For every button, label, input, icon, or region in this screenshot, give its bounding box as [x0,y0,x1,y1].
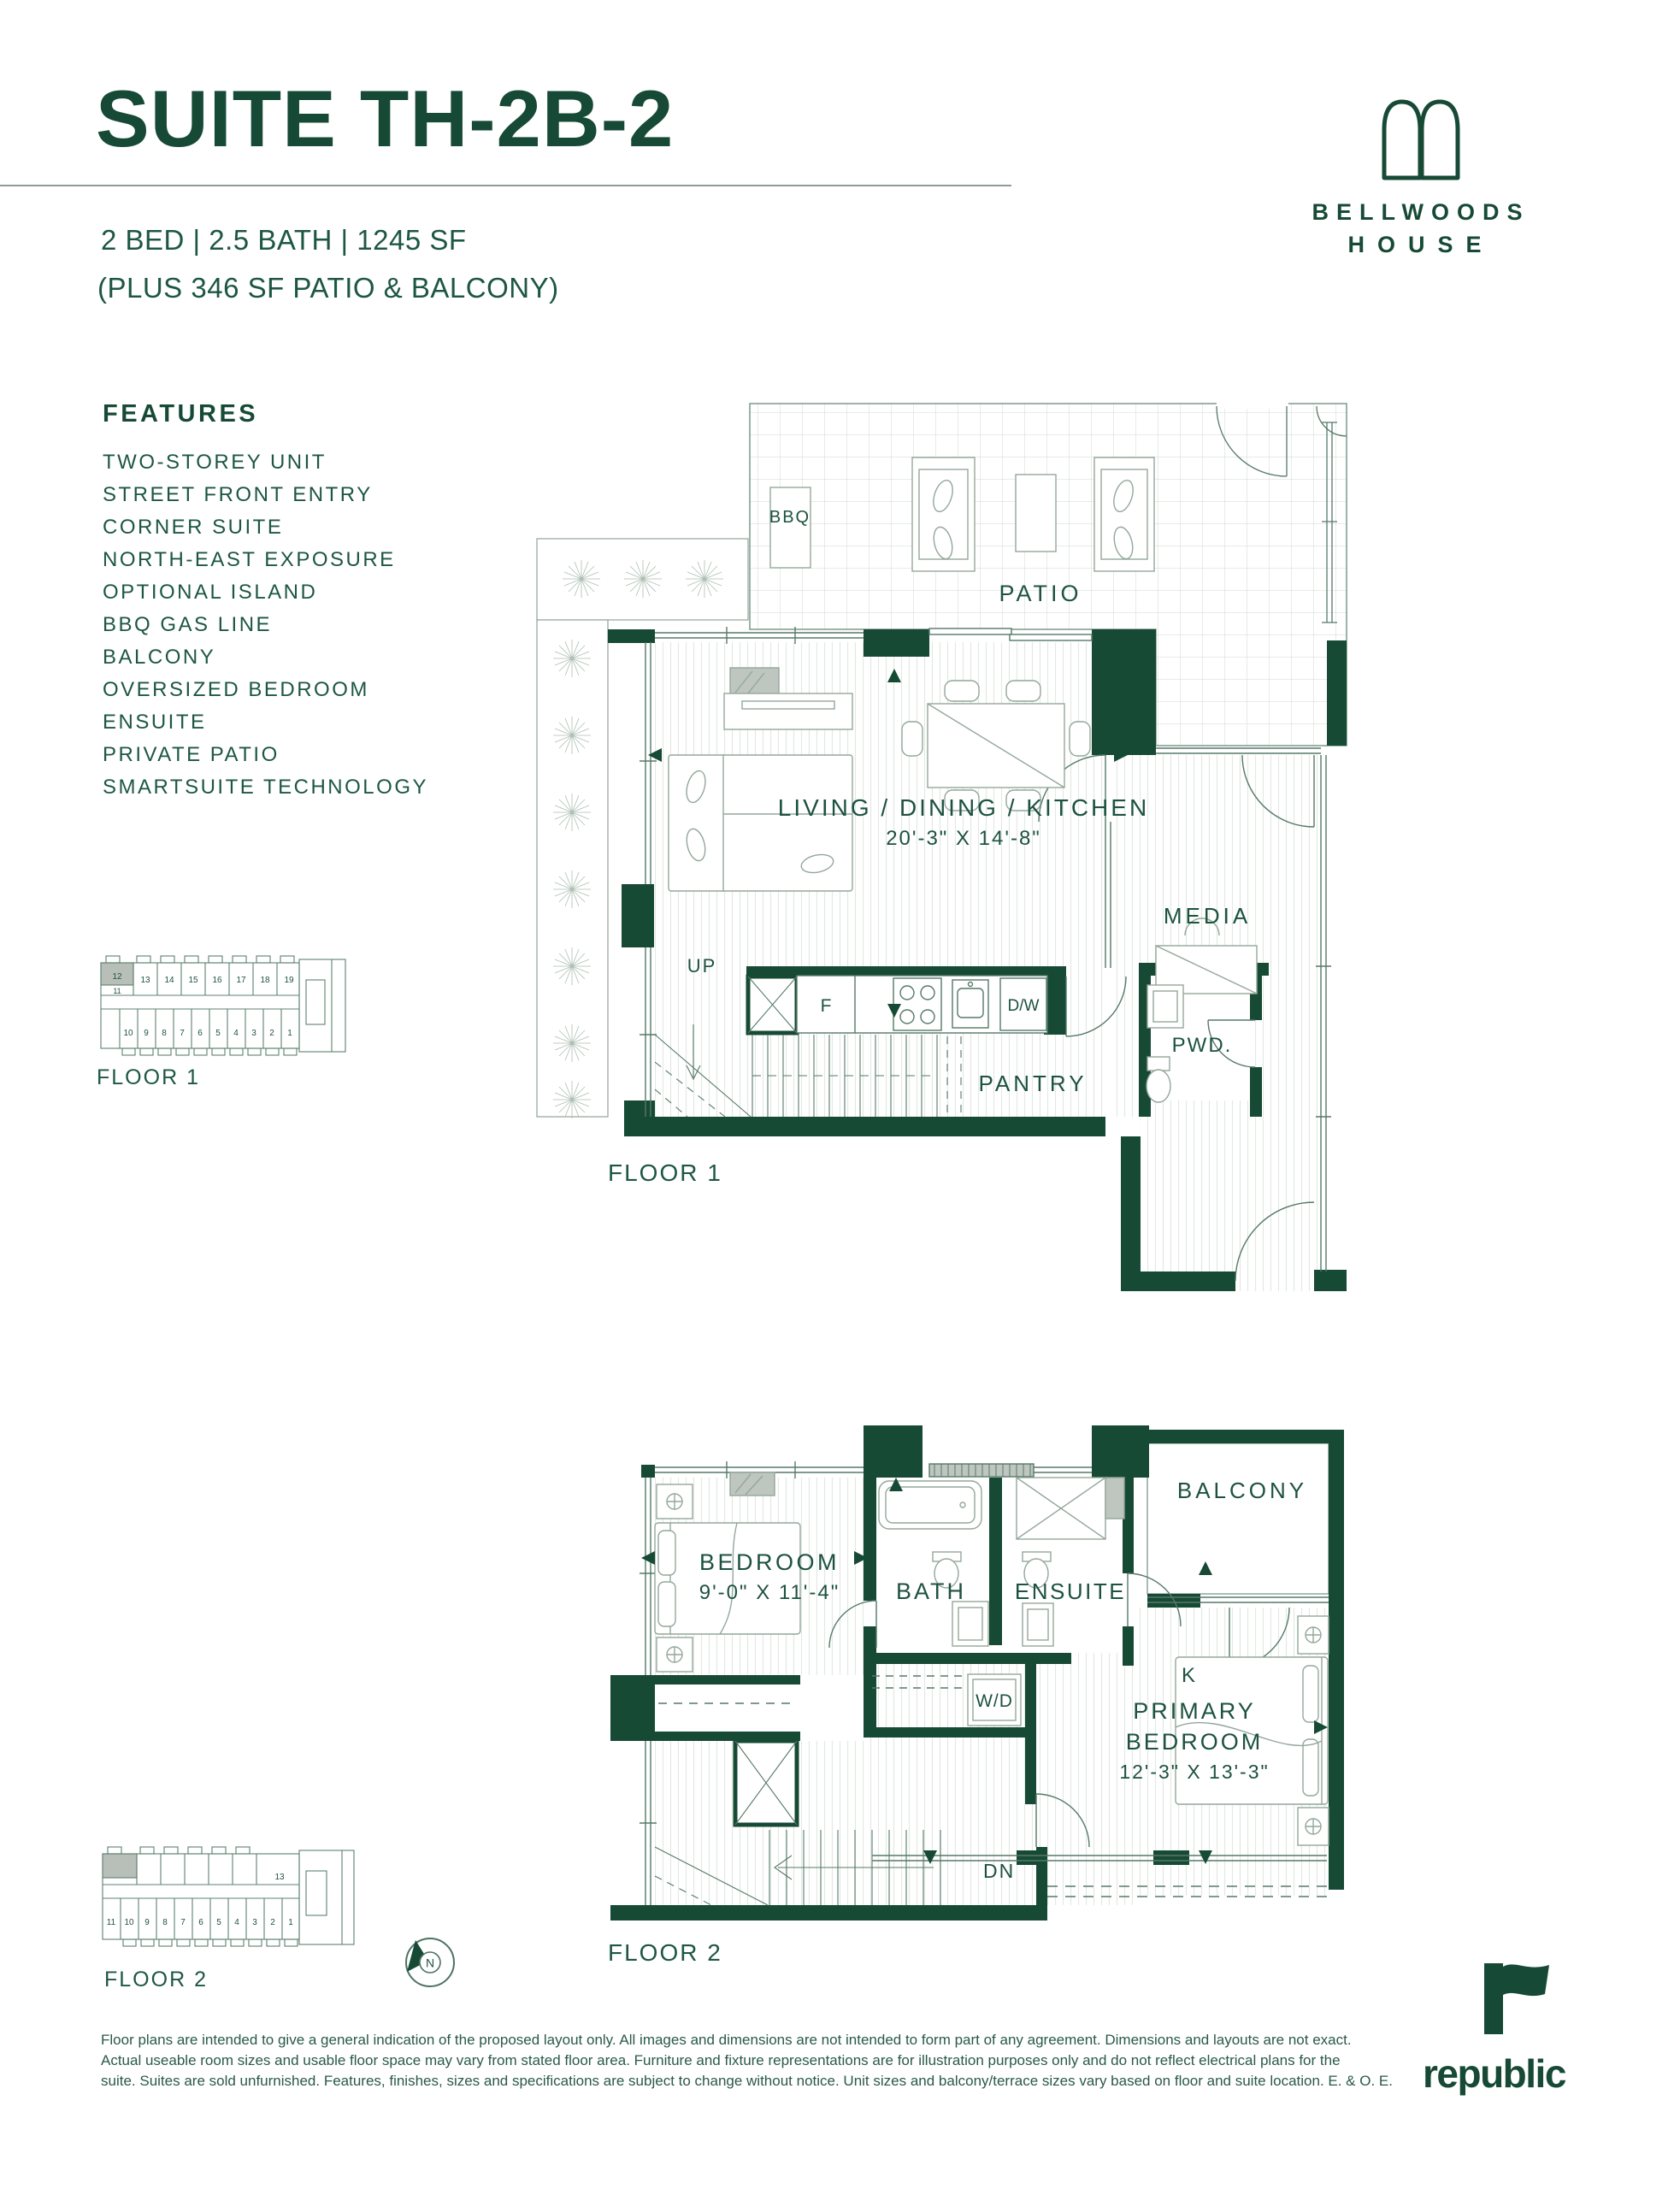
key-unit-number: 1 [287,1029,292,1038]
key-unit-number: 8 [162,1918,168,1927]
key-unit-number: 5 [215,1029,221,1038]
key-unit-number: 7 [180,1029,185,1038]
powder-label: PWD. [1172,1034,1233,1057]
primary-label-1: PRIMARY [1133,1698,1256,1724]
key-unit-number: 3 [251,1029,256,1038]
key-unit-number: 11 [113,987,121,995]
media-label: MEDIA [1164,903,1251,929]
primary-label-2: BEDROOM [1126,1729,1264,1755]
floor1-key-plan: 12 13 14 15 16 17 18 19 11 10 9 8 7 6 5 … [94,951,351,1066]
key-unit-number: 13 [140,976,150,985]
down-label: DN [983,1860,1015,1882]
living-dims: 20'-3" X 14'-8" [886,827,1041,850]
brand-name-line2: HOUSE [1276,232,1566,258]
bbq-label: BBQ [769,508,811,527]
page-title: SUITE TH-2B-2 [96,73,674,165]
key-unit-number: 2 [269,1029,274,1038]
primary-dims: 12'-3" X 13'-3" [1119,1761,1269,1783]
key-unit-number: 4 [233,1029,239,1038]
north-label: N [426,1956,434,1970]
feature-item: OVERSIZED BEDROOM [103,674,428,706]
key-unit-number: 18 [260,976,270,985]
key-unit-number: 5 [216,1918,221,1927]
key-unit-number: 6 [198,1918,203,1927]
feature-item: CORNER SUITE [103,511,428,544]
ensuite-label: ENSUITE [1015,1578,1126,1604]
feature-item: PRIVATE PATIO [103,739,428,771]
feature-item: OPTIONAL ISLAND [103,576,428,609]
dishwasher-label: D/W [1008,997,1040,1015]
suite-specs-extra: (PLUS 346 SF PATIO & BALCONY) [97,272,559,304]
key-unit-number: 6 [197,1029,203,1038]
republic-flag-icon [1484,1963,1553,2039]
key-unit-number: 9 [144,1918,150,1927]
feature-item: ENSUITE [103,706,428,739]
bedroom-cabinet [730,1472,775,1496]
key-unit-number: 3 [252,1918,257,1927]
key-unit-number: 17 [236,976,246,985]
bedroom-label: BEDROOM [699,1549,840,1575]
balcony-label: BALCONY [1177,1478,1307,1503]
feature-item: BALCONY [103,641,428,674]
floor1-key-label: FLOOR 1 [97,1065,200,1090]
floor2-key-plan: 13 11 10 9 8 7 6 5 4 3 2 1 [96,1840,386,1960]
republic-wordmark: republic [1423,2050,1565,2097]
disclaimer: Floor plans are intended to give a gener… [101,2030,1400,2092]
key-unit-number: 4 [234,1918,239,1927]
tv-console [724,693,852,729]
up-label: UP [687,955,717,976]
feature-item: STREET FRONT ENTRY [103,479,428,511]
patio-label: PATIO [999,581,1082,606]
title-divider [0,185,1011,186]
key-unit-number: 13 [274,1873,285,1882]
brand-name-line1: BELLWOODS [1276,199,1566,226]
key-unit-number: 15 [188,976,198,985]
living-label: LIVING / DINING / KITCHEN [778,794,1149,821]
key-unit-number: 8 [162,1029,167,1038]
key-unit-number: 2 [270,1918,275,1927]
key-unit-number: 11 [107,1918,116,1927]
key-unit-number: 10 [124,1918,134,1927]
key-unit-number: 10 [123,1029,133,1038]
floor1-plan: BBQ PATIO LIVING / DINING / KITCHEN 20'-… [513,368,1368,1360]
features-list: TWO-STOREY UNIT STREET FRONT ENTRY CORNE… [103,446,428,804]
bedroom-dims: 9'-0" X 11'-4" [699,1581,840,1604]
fridge-label: F [821,996,832,1016]
feature-item: NORTH-EAST EXPOSURE [103,544,428,576]
king-label: K [1182,1664,1195,1687]
bbq-grill [770,487,811,568]
features-heading: FEATURES [103,400,258,428]
balcony-floor [1147,1443,1329,1594]
floor2-plan: BALCONY BEDROOM 9'-0" X 11'-4" BATH ENSU… [513,1402,1368,2001]
fireplace-cabinet [730,668,779,696]
key-unit-number: 7 [180,1918,186,1927]
key-unit-number: 12 [112,972,122,982]
disclaimer-line: suite. Suites are sold unfurnished. Feat… [101,2071,1400,2092]
powder-toilet [1147,1057,1170,1071]
floor2-key-label: FLOOR 2 [104,1968,208,1992]
disclaimer-line: Floor plans are intended to give a gener… [101,2030,1400,2050]
double-arch-icon [1378,96,1464,181]
washer-dryer-label: W/D [976,1691,1013,1711]
feature-item: BBQ GAS LINE [103,609,428,641]
key-unit-number: 9 [144,1029,149,1038]
north-compass-icon: N [402,1934,458,1991]
suite-specs: 2 BED | 2.5 BATH | 1245 SF [101,224,467,257]
highlighted-unit [103,1854,137,1878]
feature-item: TWO-STOREY UNIT [103,446,428,479]
feature-item: SMARTSUITE TECHNOLOGY [103,771,428,804]
key-unit-number: 14 [164,976,174,985]
floor2-plan-label: FLOOR 2 [608,1939,722,1967]
key-unit-number: 19 [284,976,294,985]
bath-label: BATH [896,1578,966,1604]
disclaimer-line: Actual useable room sizes and usable flo… [101,2050,1400,2071]
brochure-page: SUITE TH-2B-2 2 BED | 2.5 BATH | 1245 SF… [0,0,1680,2189]
floor1-plan-label: FLOOR 1 [608,1159,722,1187]
key-unit-number: 16 [212,976,222,985]
pantry-label: PANTRY [978,1071,1087,1096]
key-unit-number: 1 [288,1918,293,1927]
